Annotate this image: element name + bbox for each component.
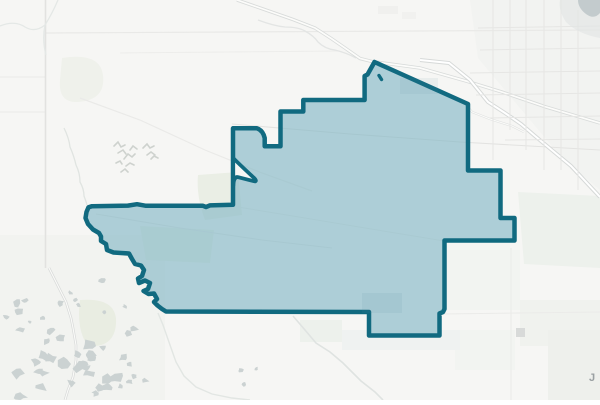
svg-text:J: J bbox=[589, 372, 595, 384]
